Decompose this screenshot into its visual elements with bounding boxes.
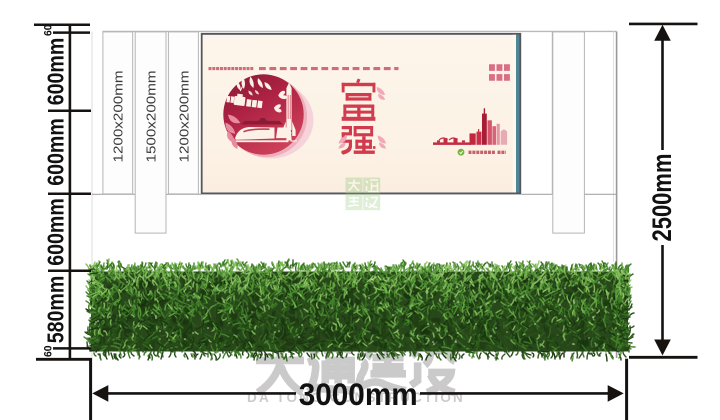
svg-text:1200x200mm: 1200x200mm: [112, 71, 126, 163]
svg-text:600mm: 600mm: [43, 118, 69, 186]
svg-text:2500mm: 2500mm: [647, 154, 677, 242]
svg-text:3000mm: 3000mm: [299, 376, 418, 412]
svg-text:1500x200mm: 1500x200mm: [145, 71, 159, 163]
svg-text:600mm: 600mm: [43, 38, 69, 106]
svg-text:60: 60: [43, 346, 55, 358]
svg-text:60: 60: [43, 24, 55, 36]
svg-text:1200x200mm: 1200x200mm: [177, 71, 191, 163]
svg-text:600mm: 600mm: [43, 198, 69, 266]
svg-text:580mm: 580mm: [43, 276, 69, 344]
